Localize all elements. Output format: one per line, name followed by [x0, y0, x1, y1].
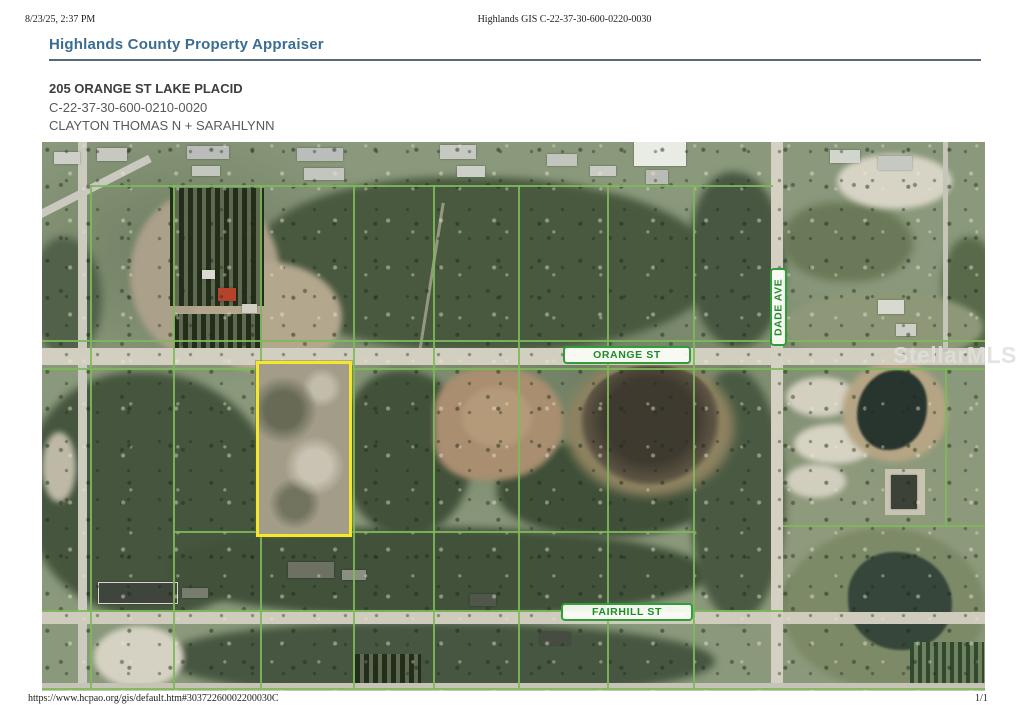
building — [54, 152, 80, 164]
property-owner: CLAYTON THOMAS N + SARAHLYNN — [49, 118, 275, 133]
nursery-rows — [170, 188, 264, 306]
aerial-map: ORANGE ST DADE AVE FAIRHILL ST — [42, 142, 985, 691]
building — [187, 146, 229, 159]
barn-building — [98, 582, 178, 604]
building — [304, 168, 344, 180]
sand-trail — [786, 464, 846, 498]
footer-url: https://www.hcpao.org/gis/default.htm#30… — [28, 693, 279, 704]
parcel-line — [433, 185, 435, 688]
road-bottom — [42, 683, 985, 691]
stellar-mls-watermark: StellarMLS — [893, 342, 1017, 369]
nursery-rows — [910, 642, 984, 689]
building — [297, 148, 343, 161]
building — [634, 142, 686, 166]
property-parcel-id: C-22-37-30-600-0210-0020 — [49, 100, 207, 115]
road-east-trail — [943, 142, 948, 352]
building — [547, 154, 577, 166]
building — [878, 156, 912, 170]
terrain-patch — [783, 202, 913, 282]
parcel-line — [173, 531, 693, 533]
building — [891, 475, 917, 509]
street-label-fairhill-st: FAIRHILL ST — [561, 603, 693, 621]
subject-parcel-highlight — [256, 361, 352, 537]
print-header-title: Highlands GIS C-22-37-30-600-0220-0030 — [105, 14, 1024, 25]
page-title: Highlands County Property Appraiser — [49, 36, 324, 53]
parcel-line — [353, 185, 355, 688]
road-fairhill-st — [42, 612, 985, 624]
red-roof-building — [218, 288, 236, 301]
street-label-dade-ave: DADE AVE — [770, 268, 787, 346]
building — [896, 324, 916, 336]
parcel-line — [42, 340, 985, 342]
building — [242, 304, 257, 313]
building — [202, 270, 215, 279]
cleared-field — [462, 387, 532, 447]
parcel-line — [518, 185, 520, 688]
building — [646, 170, 668, 184]
building — [457, 166, 485, 177]
building — [97, 148, 127, 161]
building — [470, 594, 496, 606]
terrain-patch — [42, 237, 102, 357]
street-label-orange-st: ORANGE ST — [563, 346, 691, 364]
building — [830, 150, 860, 163]
building — [540, 632, 570, 645]
property-address: 205 ORANGE ST LAKE PLACID — [49, 81, 243, 96]
parcel-line — [90, 185, 92, 688]
building — [440, 145, 476, 159]
road-diagonal — [42, 155, 152, 221]
road-orange-st — [42, 348, 985, 365]
building — [288, 562, 334, 578]
building — [590, 166, 616, 176]
terrain-patch — [170, 622, 715, 691]
print-timestamp: 8/23/25, 2:37 PM — [25, 14, 95, 25]
building — [182, 588, 208, 598]
parcel-line — [90, 185, 773, 187]
road-dade-ave — [771, 142, 783, 691]
building — [878, 300, 904, 314]
parcel-line — [693, 185, 695, 688]
sand-patch — [42, 432, 76, 502]
page-number: 1/1 — [975, 693, 988, 704]
parcel-line — [42, 368, 985, 370]
parcel-line — [945, 368, 947, 525]
parcel-line — [173, 185, 175, 688]
sand-patch — [94, 626, 184, 688]
building — [192, 166, 220, 176]
road-vertical-west — [78, 142, 87, 691]
title-divider — [49, 59, 981, 61]
parcel-line — [783, 525, 985, 527]
parcel-line — [42, 688, 985, 690]
